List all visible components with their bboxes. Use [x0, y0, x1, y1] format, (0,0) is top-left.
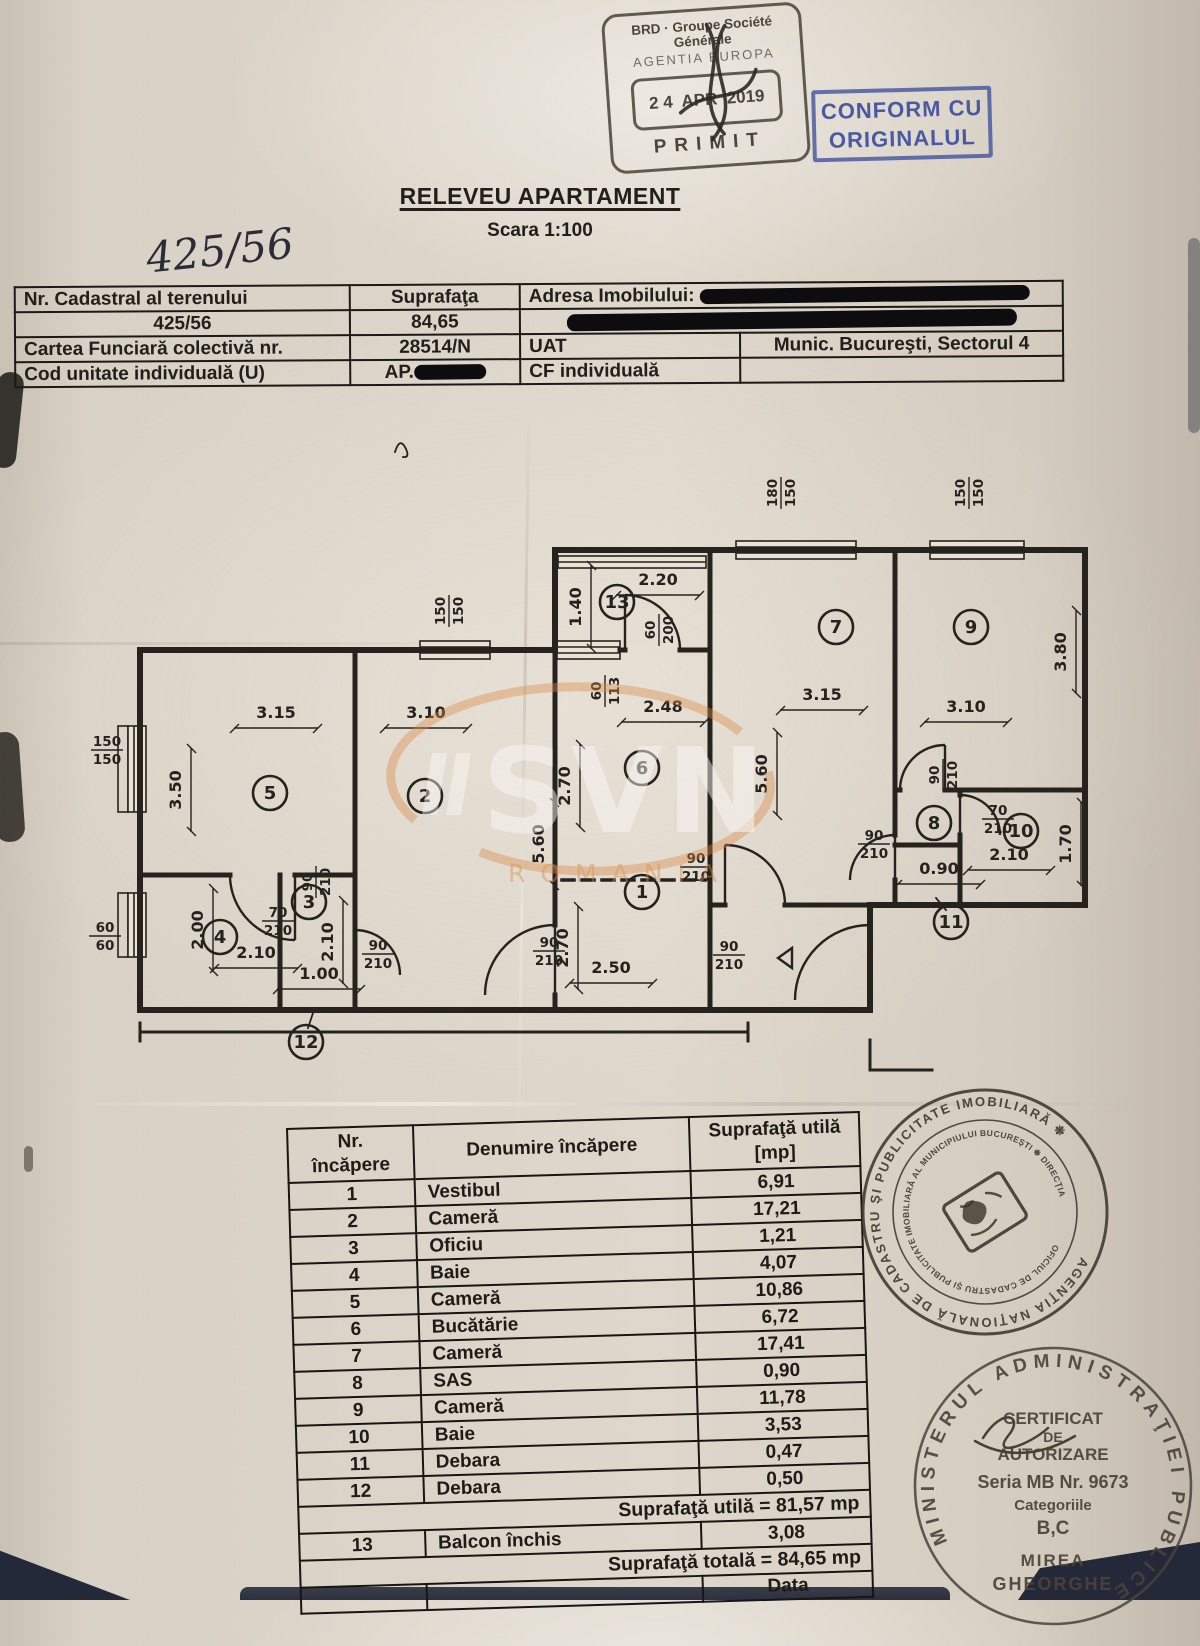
watermark-subtext: ROMANIA [508, 859, 732, 888]
conform-cu-originalul-stamp: CONFORM CU ORIGINALUL [811, 86, 993, 163]
photo-background-corner [0, 1518, 130, 1600]
cell-value: Munic. Bucureşti, Sectorul 4 [740, 331, 1063, 358]
svg-text:11: 11 [938, 912, 963, 933]
svg-text:90: 90 [300, 873, 316, 892]
svg-text:90: 90 [865, 828, 884, 844]
svg-text:90: 90 [540, 935, 559, 951]
svg-text:4: 4 [214, 927, 227, 948]
scan-smudge [0, 731, 26, 843]
opening-size-label: 90210 [362, 938, 394, 972]
cell-value: AP. [350, 359, 520, 385]
svg-text:2.20: 2.20 [638, 570, 677, 589]
address-label: Adresa Imobilului: [529, 285, 695, 307]
svg-text:180: 180 [765, 479, 781, 507]
opening-size-label: 180150 [765, 477, 799, 509]
svg-text:210: 210 [860, 846, 888, 862]
apartment-label: AP. [385, 361, 414, 382]
svg-text:3: 3 [303, 892, 316, 913]
svg-text:3.15: 3.15 [802, 685, 841, 704]
svg-text:3.80: 3.80 [1051, 632, 1070, 671]
cell-address: Adresa Imobilului: [520, 281, 1063, 309]
dimension-label: 3.15 [776, 685, 868, 715]
photo-background-corner [1018, 1542, 1200, 1600]
svg-text:210: 210 [945, 761, 961, 789]
table-row: Cod unitate individuală (U) AP. CF indiv… [15, 356, 1063, 387]
categorii-value: B,C [1037, 1518, 1070, 1539]
svg-text:12: 12 [293, 1032, 318, 1053]
scanned-apartment-plan-document: { "document": { "title": "RELEVEU APARTA… [0, 0, 1200, 1600]
header-nr: Nr.încăpere [287, 1125, 414, 1183]
handwritten-cadastral-number: 425/56 [144, 218, 296, 282]
room-areas-table: Nr.încăpere Denumire încăpere Suprafaţă … [286, 1111, 874, 1615]
svg-text:3.50: 3.50 [166, 770, 185, 809]
cell: 9 [295, 1395, 421, 1426]
cert-line: AUTORIZARE [997, 1445, 1108, 1464]
floor-plan-drawing: 526143137981011123.153.102.483.153.102.2… [80, 430, 1140, 1090]
brd-stamp-date: 2 4 APR 2019 [630, 69, 783, 131]
cell-value: 425/56 [15, 310, 350, 337]
svg-text:8: 8 [928, 813, 941, 834]
svg-text:150: 150 [971, 479, 987, 507]
room-number-label: 5 [253, 776, 287, 810]
svg-text:150: 150 [783, 479, 799, 507]
opening-size-label: 150150 [953, 477, 987, 509]
cell-label: Cod unitate individuală (U) [15, 360, 350, 387]
svg-text:AGENŢIA NAŢIONALĂ DE CADASTRU: AGENŢIA NAŢIONALĂ DE CADASTRU ŞI PUBLICI… [853, 1080, 1117, 1344]
opening-size-label: 6060 [89, 920, 121, 954]
brd-received-stamp: BRD · Groupe Société Générale AGENTIA EU… [601, 1, 812, 175]
redaction-bar [700, 285, 1030, 304]
dimension-label: 0.90 [893, 859, 985, 889]
seria-line: Seria MB Nr. 9673 [977, 1472, 1128, 1492]
svg-text:2.10: 2.10 [236, 943, 275, 962]
svg-text:70: 70 [269, 905, 288, 921]
ocpi-round-stamp: AGENŢIA NAŢIONALĂ DE CADASTRU ŞI PUBLICI… [853, 1080, 1117, 1344]
svg-text:2.50: 2.50 [591, 958, 630, 977]
svg-text:210: 210 [364, 956, 392, 972]
room-number-label: 7 [819, 610, 853, 644]
svg-text:2.10: 2.10 [318, 922, 337, 961]
paper-crease [60, 1102, 1140, 1106]
cell-value: 84,65 [350, 309, 520, 335]
svg-text:90: 90 [927, 766, 943, 785]
redaction-bar [566, 308, 1016, 331]
svg-text:210: 210 [715, 957, 743, 973]
room-number-label: 11 [934, 905, 968, 939]
page-title: RELEVEU APARTAMENT [330, 183, 750, 210]
cell [301, 1584, 427, 1614]
svg-text:60: 60 [96, 920, 115, 936]
cell: 11 [297, 1449, 423, 1480]
svg-text:150: 150 [433, 597, 449, 625]
svg-text:10: 10 [1008, 821, 1033, 842]
categorii-label: Categoriile [1014, 1497, 1092, 1514]
watermark-text: SVN [482, 722, 769, 860]
room-number-label: 12 [289, 1025, 323, 1059]
cell: 10 [296, 1422, 422, 1453]
svg-text:210: 210 [984, 821, 1012, 837]
dimension-label: 2.10 [963, 845, 1055, 875]
cell: 6 [293, 1314, 419, 1345]
room-number-label: 8 [917, 806, 951, 840]
svg-text:3.15: 3.15 [256, 703, 295, 722]
signature-scribble [975, 1417, 1075, 1453]
dimension-label: 3.10 [920, 697, 1012, 727]
room-number-label: 9 [954, 610, 988, 644]
svg-text:1.40: 1.40 [566, 587, 585, 626]
conform-stamp-line1: CONFORM CU [815, 94, 988, 127]
cell: 12 [297, 1476, 423, 1507]
cert-line: DE [1043, 1429, 1062, 1445]
header-name: Denumire încăpere [413, 1117, 691, 1179]
svg-text:60: 60 [643, 621, 659, 640]
cell: 13 [299, 1530, 425, 1561]
dimension-label: 2.50 [565, 958, 657, 988]
cell-label: Suprafaţa [350, 284, 520, 310]
svg-text:5: 5 [264, 783, 277, 804]
redaction-bar [414, 364, 486, 380]
opening-size-label: 90210 [713, 939, 745, 973]
header-area: Suprafaţă utilă[mp] [689, 1112, 860, 1171]
dimension-label: 2.00 [188, 884, 218, 976]
scan-smudge [24, 1146, 33, 1172]
svg-text:150: 150 [93, 734, 121, 750]
cell: 7 [293, 1341, 419, 1372]
opening-size-label: 150150 [433, 595, 467, 627]
cell: 2 [289, 1206, 415, 1237]
svg-text:210: 210 [535, 953, 563, 969]
brd-stamp-status: PRIMIT [612, 126, 807, 161]
scale-label: Scara 1:100 [330, 220, 750, 242]
entrance-arrow-icon [778, 948, 792, 968]
svg-text:9: 9 [965, 617, 978, 638]
cadastral-info-table: Nr. Cadastral al terenului Suprafaţa Adr… [14, 280, 1065, 388]
svg-text:210: 210 [318, 868, 334, 896]
coat-of-arms-emblem [942, 1171, 1028, 1253]
svg-text:90: 90 [369, 938, 388, 954]
cell-address2 [520, 306, 1063, 334]
svg-text:200: 200 [661, 616, 677, 644]
svg-text:3.10: 3.10 [946, 697, 985, 716]
cell-label: Cartea Funciară colectivă nr. [15, 335, 350, 362]
cert-line: CERTIFICAT [1003, 1409, 1103, 1428]
svg-text:OFICIUL DE CADASTRU ŞI PUBLICI: OFICIUL DE CADASTRU ŞI PUBLICITATE IMOBI… [873, 1100, 1096, 1323]
photo-background-edge [1188, 238, 1200, 433]
svg-text:1.00: 1.00 [299, 964, 338, 983]
svg-text:60: 60 [96, 938, 115, 954]
cell-value [740, 356, 1063, 383]
opening-size-label: 60200 [643, 614, 677, 646]
cell-label: UAT [520, 333, 740, 359]
svg-text:70: 70 [989, 803, 1008, 819]
cell-value: 28514/N [350, 334, 520, 360]
cell: 3 [290, 1233, 416, 1264]
svg-text:150: 150 [953, 479, 969, 507]
cell: 8 [294, 1368, 420, 1399]
room-number-label: 13 [600, 585, 634, 619]
dimension-label: 2.20 [612, 570, 704, 600]
cell-label: CF individuală [520, 358, 740, 384]
cell: 5 [292, 1287, 418, 1318]
svn-romania-watermark: SVN ROMANIA [391, 687, 771, 888]
svg-text:90: 90 [720, 939, 739, 955]
svg-text:210: 210 [264, 923, 292, 939]
data-label: Data [703, 1571, 873, 1602]
cell: 4 [291, 1260, 417, 1291]
room-number-label: 4 [203, 920, 237, 954]
svg-text:1.70: 1.70 [1056, 824, 1075, 863]
ocpi-inner-text: OFICIUL DE CADASTRU ŞI PUBLICITATE IMOBI… [873, 1100, 1096, 1323]
dimension-label: 1.70 [1056, 798, 1086, 890]
dimension-label: 1.40 [566, 561, 596, 653]
svg-text:7: 7 [830, 617, 843, 638]
dimension-label: 3.80 [1051, 606, 1081, 698]
svg-text:150: 150 [93, 752, 121, 768]
svg-text:150: 150 [451, 597, 467, 625]
cell: 1 [289, 1179, 415, 1210]
dimension-label: 3.50 [166, 744, 196, 836]
ocpi-outer-text: AGENŢIA NAŢIONALĂ DE CADASTRU ŞI PUBLICI… [853, 1080, 1117, 1344]
dimension-label: 3.15 [230, 703, 322, 733]
svg-text:0.90: 0.90 [919, 859, 958, 878]
conform-stamp-line2: ORIGINALUL [816, 122, 989, 155]
opening-size-label: 90210 [858, 828, 890, 862]
cell-label: Nr. Cadastral al terenului [15, 285, 350, 312]
svg-text:2.00: 2.00 [188, 910, 207, 949]
svg-text:2.10: 2.10 [989, 845, 1028, 864]
